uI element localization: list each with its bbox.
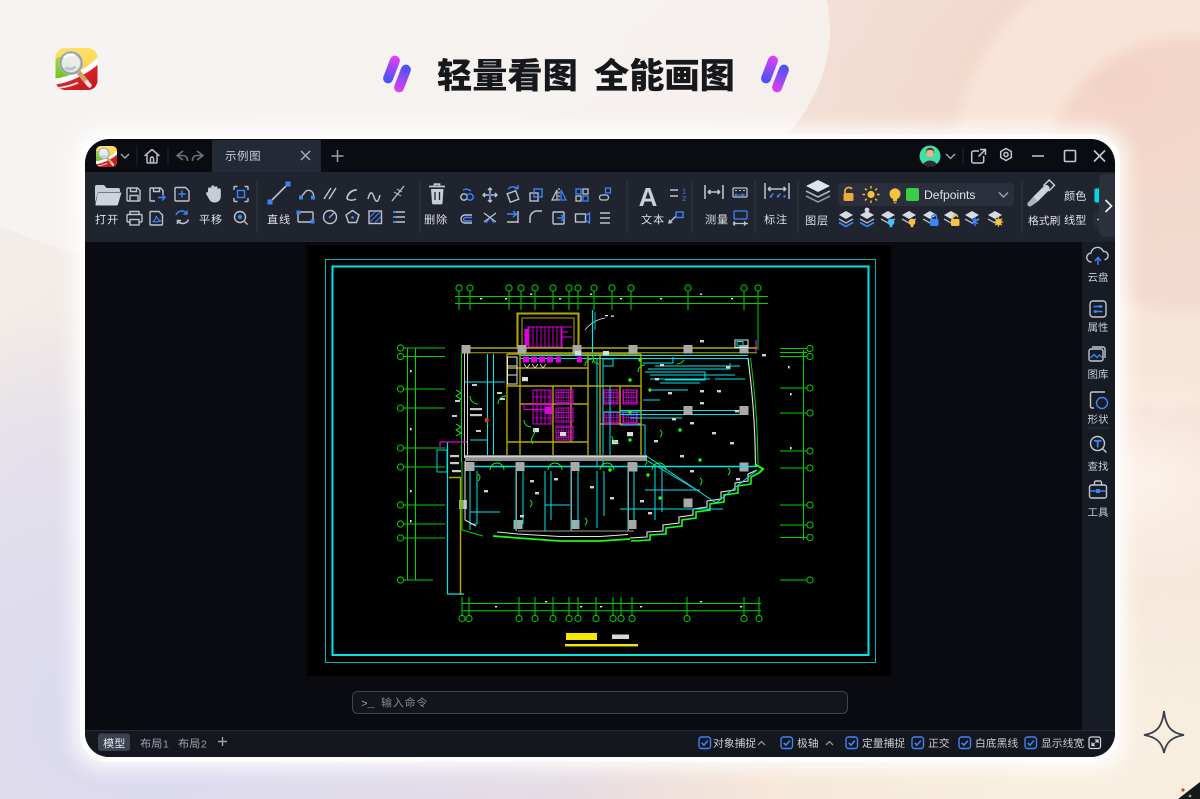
svg-text:1: 1 <box>163 739 169 751</box>
svg-text:A: A <box>639 182 658 212</box>
svg-text:>_: >_ <box>361 699 375 711</box>
svg-text:Defpoints: Defpoints <box>924 188 976 202</box>
svg-text:2: 2 <box>682 194 686 203</box>
svg-text:2: 2 <box>201 739 207 751</box>
